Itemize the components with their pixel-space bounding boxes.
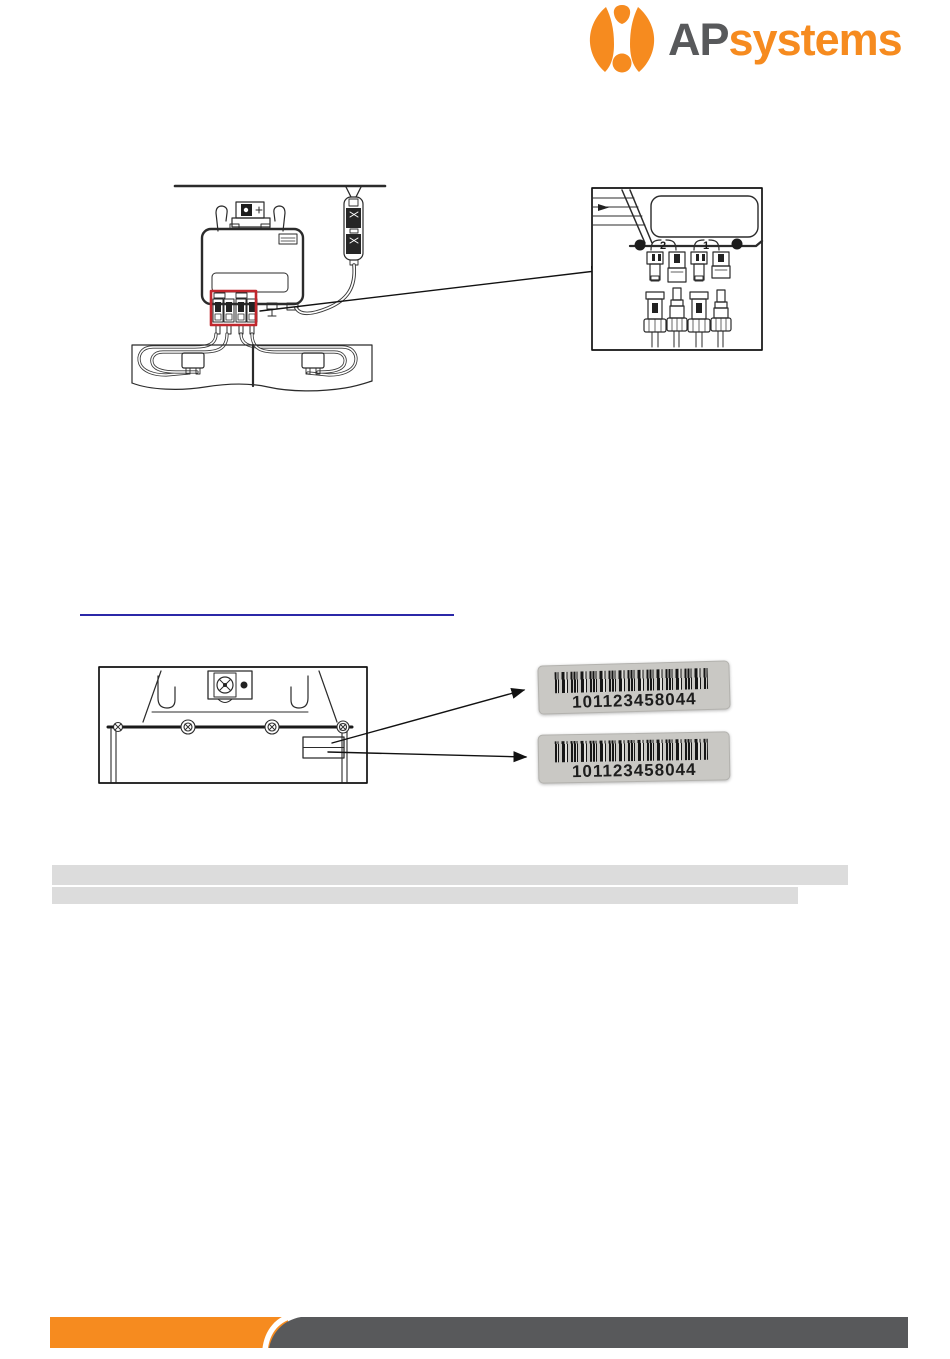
serial-number-label-1: 101123458044 [537,660,730,714]
serial-number-label-2: 101123458044 [538,731,731,783]
ac-bus-connector [344,187,363,265]
barcode-graphic [555,739,708,763]
page-footer [45,1310,915,1355]
serial-number-text: 101123458044 [539,759,729,782]
mounting-bracket [216,202,285,231]
figure-serial-number-location [95,655,545,805]
apsystems-logo-icon [586,4,658,76]
footer-orange-band [50,1317,288,1348]
logo-wordmark: APsystems [668,4,902,76]
highlighted-text-block-2 [52,887,798,904]
serial-number-text: 101123458044 [539,688,729,713]
detail-port-2-label: 2 [660,240,666,252]
zoom-arrow [260,270,604,311]
detail-inset-box: 2 1 [592,188,762,350]
dc-connectors [213,293,257,334]
logo-text-ap: AP [668,14,729,65]
manual-page: APsystems [0,0,950,1359]
logo-text-systems: systems [729,14,902,65]
figure-inverter-installation: 2 1 [60,165,780,405]
hyperlink-underline[interactable] [80,614,454,616]
apsystems-logo: APsystems [586,4,902,76]
highlighted-text-block-1 [52,865,848,885]
footer-gray-band [269,1317,908,1348]
detail-port-1-label: 1 [703,240,709,252]
